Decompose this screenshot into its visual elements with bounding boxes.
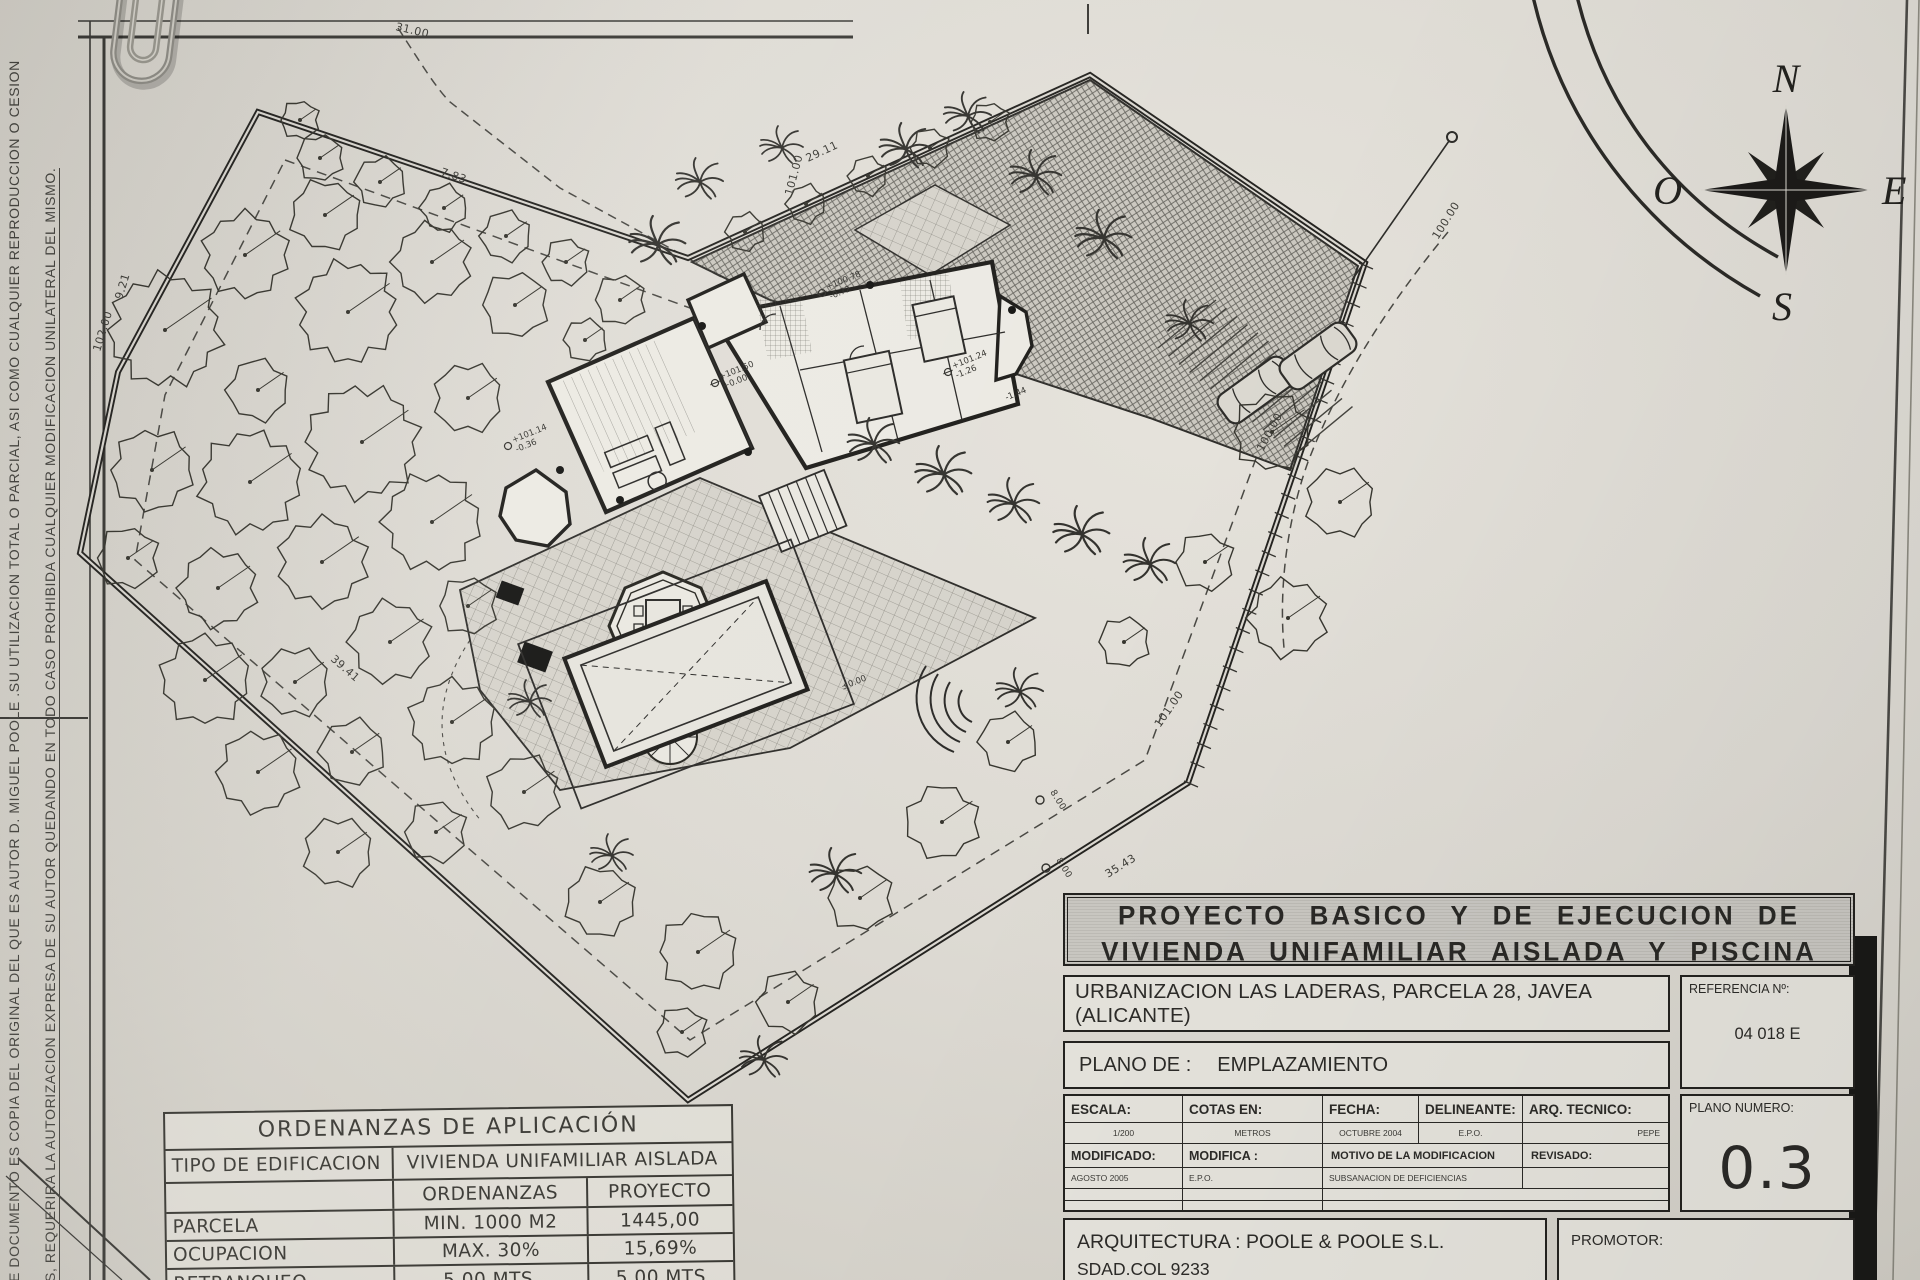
modifica-label: MODIFICA : — [1183, 1144, 1323, 1168]
leader-line — [1352, 132, 1457, 280]
tree — [479, 210, 530, 263]
palm-tree — [1124, 538, 1176, 582]
fecha-value: OCTUBRE 2004 — [1323, 1123, 1419, 1144]
tree — [405, 802, 467, 863]
project-title-box: PROYECTO BASICO Y DE EJECUCION DE VIVIEN… — [1063, 893, 1855, 966]
garden-steps — [917, 666, 972, 752]
empty-cell — [1065, 1201, 1183, 1210]
tipo-edificacion-label: TIPO DE EDIFICACION — [166, 1148, 394, 1182]
table-row-ordenanza: MAX. 30% — [395, 1236, 589, 1265]
scanned-site-plan-sheet: 31.00 7.83 101.00 29.11 9.21 102.00 39.4… — [0, 0, 1920, 1280]
table-row-name: RETRANQUEO — [167, 1267, 395, 1280]
dimension-label: 39.41 — [328, 652, 362, 684]
table-row-proyecto: 15,69% — [589, 1234, 732, 1262]
dimension-label: 101.00 — [1152, 688, 1186, 729]
tree — [657, 1008, 707, 1057]
tree — [483, 273, 548, 337]
table-row-proyecto: 5,00 MTS — [589, 1262, 732, 1280]
tree — [354, 156, 405, 207]
arq-tecnico-label: ARQ. TECNICO: — [1523, 1096, 1668, 1123]
table-row-ordenanza: MIN. 1000 M2 — [394, 1208, 588, 1237]
plano-numero-label: PLANO NUMERO: — [1689, 1101, 1794, 1115]
tree — [907, 787, 979, 859]
empty-cell — [1183, 1201, 1323, 1210]
tree — [159, 633, 248, 723]
arquitectura-line2: SDAD.COL 9233 — [1077, 1256, 1545, 1280]
tree — [197, 430, 300, 535]
palm-tree — [944, 92, 991, 133]
tree — [1099, 617, 1149, 666]
plano-de-label: PLANO DE : — [1079, 1054, 1191, 1077]
tree — [419, 183, 466, 232]
dimension-label: 101.00 — [782, 153, 805, 196]
road — [1532, 0, 1778, 296]
arquitectura-line1: ARQUITECTURA : POOLE & POOLE S.L. — [1077, 1229, 1545, 1256]
palm-tree — [996, 668, 1043, 709]
plano-de-value: EMPLAZAMIENTO — [1217, 1054, 1388, 1077]
cotas-value: METROS — [1183, 1123, 1323, 1144]
tree — [434, 364, 499, 433]
empty-cell — [1323, 1201, 1668, 1210]
title-data-grid: ESCALA: COTAS EN: FECHA: DELINEANTE: ARQ… — [1063, 1094, 1670, 1212]
palm-tree — [740, 1036, 787, 1077]
tree — [379, 474, 480, 570]
compass-west-label: O — [1653, 168, 1682, 213]
dimension-label: 35.43 — [1103, 852, 1139, 881]
revisado-label: REVISADO: — [1523, 1144, 1668, 1168]
address-box: URBANIZACION LAS LADERAS, PARCELA 28, JA… — [1063, 975, 1670, 1032]
table-row-name: OCUPACION — [167, 1239, 395, 1268]
palm-tree — [590, 834, 633, 871]
tree — [201, 208, 289, 298]
ordenanzas-title: ORDENANZAS DE APLICACIÓN — [165, 1106, 731, 1149]
palm-tree — [1053, 506, 1109, 554]
tree — [304, 819, 371, 888]
modifica-value: E.P.O. — [1183, 1168, 1323, 1189]
tree — [390, 220, 471, 303]
referencia-box: REFERENCIA Nº: 04 018 E — [1680, 975, 1855, 1089]
paperclip — [92, 0, 222, 122]
escala-label: ESCALA: — [1065, 1096, 1183, 1123]
empty-cell — [166, 1181, 394, 1212]
revisado-value — [1523, 1168, 1668, 1189]
side-note-line2: S, REQUERIRA LA AUTORIZACION EXPRESA DE … — [42, 168, 60, 1280]
setback-markers — [1036, 796, 1050, 872]
tree — [176, 548, 258, 630]
tree — [225, 358, 287, 423]
table-row-proyecto: 1445,00 — [588, 1206, 731, 1234]
tree — [563, 318, 606, 361]
address-text: URBANIZACION LAS LADERAS, PARCELA 28, JA… — [1075, 980, 1668, 1028]
empty-cell — [1183, 1189, 1323, 1201]
tree — [111, 431, 193, 512]
tree — [1246, 577, 1328, 660]
palm-tree — [915, 446, 971, 494]
arq-tecnico-value: PEPE — [1523, 1123, 1668, 1144]
tree — [305, 386, 421, 503]
side-note-line1: E DOCUMENTO ES COPIA DEL ORIGINAL DEL QU… — [6, 60, 22, 1280]
dimension-label: 8.00 — [1047, 788, 1067, 812]
escala-value: 1/200 — [1065, 1123, 1183, 1144]
delineante-label: DELINEANTE: — [1419, 1096, 1523, 1123]
tree — [542, 239, 589, 286]
modificado-value: AGOSTO 2005 — [1065, 1168, 1183, 1189]
delineante-value: E.P.O. — [1419, 1123, 1523, 1144]
plano-de-box: PLANO DE : EMPLAZAMIENTO — [1063, 1041, 1670, 1089]
tree — [595, 276, 644, 324]
palm-tree — [676, 158, 723, 199]
cotas-label: COTAS EN: — [1183, 1096, 1323, 1123]
tree — [660, 914, 736, 989]
col-ordenanzas: ORDENANZAS — [394, 1178, 588, 1209]
modificado-label: MODIFICADO: — [1065, 1144, 1183, 1168]
tree — [290, 180, 360, 250]
table-row-ordenanza: 5,00 MTS. — [395, 1264, 589, 1280]
project-title-line2: VIVIENDA UNIFAMILIAR AISLADA Y PISCINA — [1065, 930, 1853, 967]
tree — [977, 711, 1035, 771]
tree — [261, 648, 327, 717]
level-marker: +101.14-0.36 — [502, 423, 552, 459]
referencia-value: 04 018 E — [1682, 1025, 1853, 1044]
tipo-edificacion-value: VIVIENDA UNIFAMILIAR AISLADA — [394, 1143, 731, 1179]
promotor-label: PROMOTOR: — [1571, 1232, 1663, 1249]
tree — [565, 867, 635, 936]
plano-numero-box: PLANO NUMERO: 0.3 — [1680, 1094, 1855, 1212]
tree — [1306, 468, 1373, 537]
tree — [215, 731, 299, 815]
dimension-label: 7.83 — [439, 165, 468, 186]
palm-tree — [988, 478, 1040, 522]
palm-tree — [810, 848, 862, 892]
compass-south-label: S — [1772, 284, 1792, 329]
project-title-line1: PROYECTO BASICO Y DE EJECUCION DE — [1065, 894, 1853, 931]
plano-numero-value: 0.3 — [1682, 1134, 1853, 1202]
table-row-name: PARCELA — [166, 1211, 394, 1240]
ordenanzas-table: ORDENANZAS DE APLICACIÓN TIPO DE EDIFICA… — [163, 1104, 736, 1280]
arquitectura-box: ARQUITECTURA : POOLE & POOLE S.L. SDAD.C… — [1063, 1218, 1547, 1280]
dimension-label: 102.00 — [90, 309, 115, 352]
tree — [295, 259, 396, 362]
motivo-label: MOTIVO DE LA MODIFICACION — [1323, 1144, 1523, 1168]
dimension-label: 9.21 — [112, 272, 132, 301]
empty-cell — [1065, 1189, 1183, 1201]
referencia-label: REFERENCIA Nº: — [1689, 982, 1789, 996]
col-proyecto: PROYECTO — [588, 1176, 731, 1206]
compass-east-label: E — [1881, 168, 1906, 213]
dimension-label: 29.11 — [804, 139, 840, 165]
empty-cell — [1323, 1189, 1668, 1201]
fecha-label: FECHA: — [1323, 1096, 1419, 1123]
tree — [278, 514, 369, 609]
promotor-box: PROMOTOR: — [1557, 1218, 1855, 1280]
compass-north-label: N — [1772, 56, 1802, 101]
motivo-value: SUBSANACION DE DEFICIENCIAS — [1323, 1168, 1523, 1189]
